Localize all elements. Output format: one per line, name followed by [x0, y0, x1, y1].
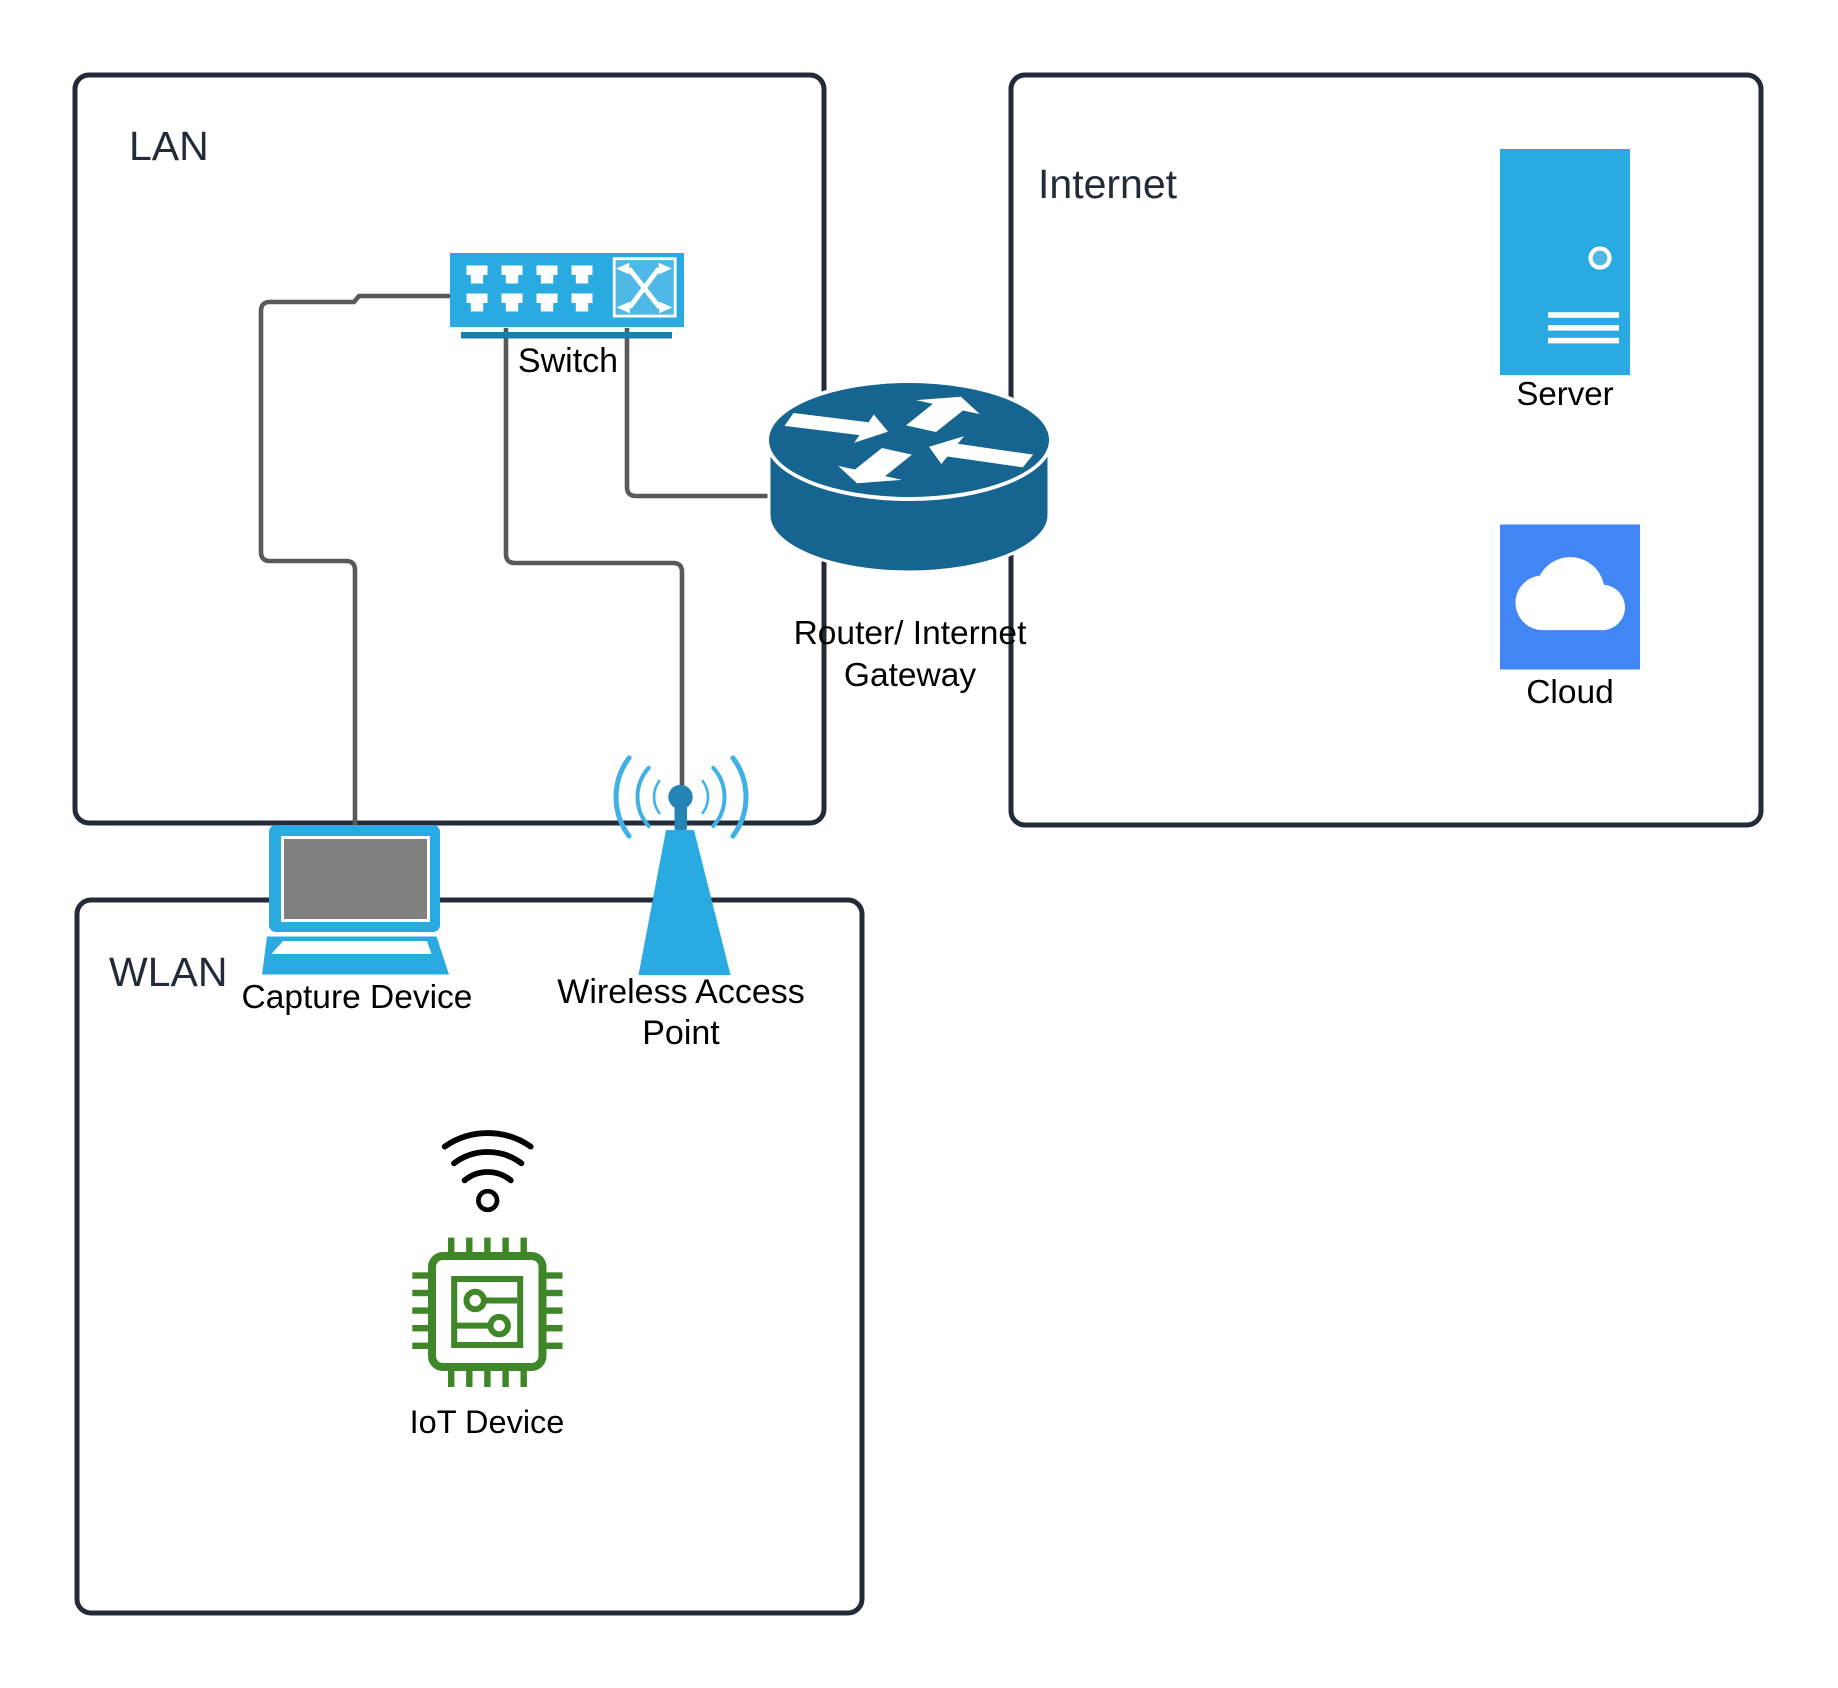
svg-text:Gateway: Gateway: [844, 657, 976, 694]
svg-text:Server: Server: [1516, 375, 1613, 412]
svg-text:Router/ Internet: Router/ Internet: [794, 615, 1027, 652]
svg-text:WLAN: WLAN: [109, 949, 227, 995]
svg-text:Point: Point: [642, 1014, 720, 1052]
svg-text:Capture Device: Capture Device: [242, 979, 473, 1016]
svg-text:Wireless Access: Wireless Access: [557, 973, 805, 1011]
svg-text:Switch: Switch: [518, 342, 618, 380]
svg-text:LAN: LAN: [129, 123, 209, 169]
svg-text:Internet: Internet: [1038, 161, 1178, 207]
svg-text:Cloud: Cloud: [1526, 674, 1614, 711]
svg-text:IoT Device: IoT Device: [410, 1404, 565, 1440]
